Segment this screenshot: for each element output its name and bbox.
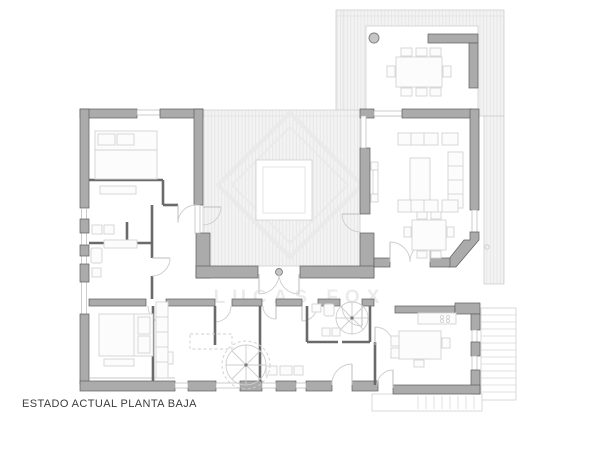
plan-title: ESTADO ACTUAL PLANTA BAJA (22, 398, 197, 410)
window (374, 111, 402, 116)
kitchen-counter (418, 313, 456, 324)
window (216, 383, 240, 388)
window (137, 110, 160, 115)
courtyard (196, 110, 374, 294)
exterior-stairs-right (481, 308, 516, 400)
window (175, 383, 188, 388)
exterior-steps-bottom (372, 394, 482, 411)
bed-master (95, 131, 157, 179)
porch-column (369, 33, 379, 43)
dresser (100, 186, 136, 194)
floor-plan-page: LUCAS FOX (0, 0, 600, 450)
courtyard-planter (256, 160, 312, 220)
window (472, 356, 477, 370)
desk-row (266, 366, 303, 375)
spiral-staircase-2 (336, 302, 368, 334)
window (195, 205, 200, 233)
wardrobe-shelves (156, 302, 168, 378)
coffee-table (410, 158, 430, 202)
terrace-side-strip (484, 116, 504, 284)
floor-plan-drawing: LUCAS FOX (0, 0, 600, 450)
window (472, 330, 477, 342)
window (262, 383, 276, 388)
window (296, 383, 306, 388)
window (361, 116, 366, 148)
window (472, 210, 477, 234)
